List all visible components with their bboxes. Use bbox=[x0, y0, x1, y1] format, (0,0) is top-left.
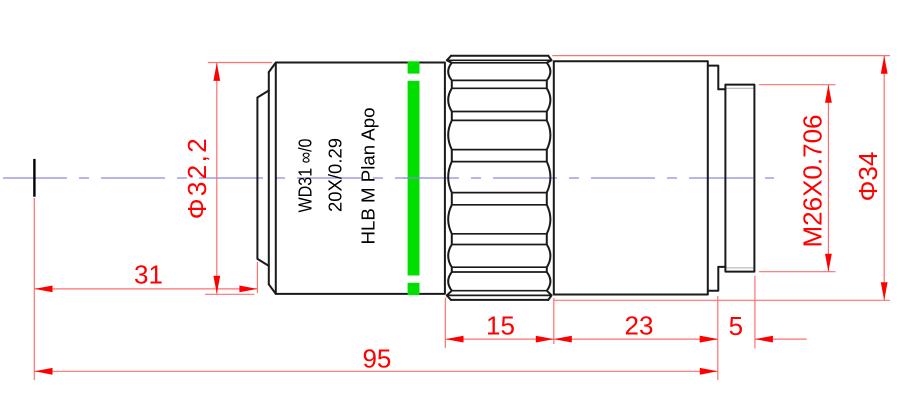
svg-text:Φ32,2: Φ32,2 bbox=[182, 136, 212, 219]
svg-text:5: 5 bbox=[729, 311, 743, 341]
svg-text:20X/0.29: 20X/0.29 bbox=[325, 138, 346, 212]
svg-text:Φ34: Φ34 bbox=[853, 152, 883, 202]
svg-text:15: 15 bbox=[486, 310, 515, 340]
svg-text:23: 23 bbox=[625, 310, 654, 340]
svg-text:31: 31 bbox=[134, 259, 163, 289]
svg-text:95: 95 bbox=[362, 343, 391, 373]
svg-text:WD31 ∞/0: WD31 ∞/0 bbox=[295, 139, 316, 213]
svg-text:M26X0.706: M26X0.706 bbox=[798, 115, 828, 248]
svg-text:HLB M Plan Apo: HLB M Plan Apo bbox=[358, 108, 379, 245]
